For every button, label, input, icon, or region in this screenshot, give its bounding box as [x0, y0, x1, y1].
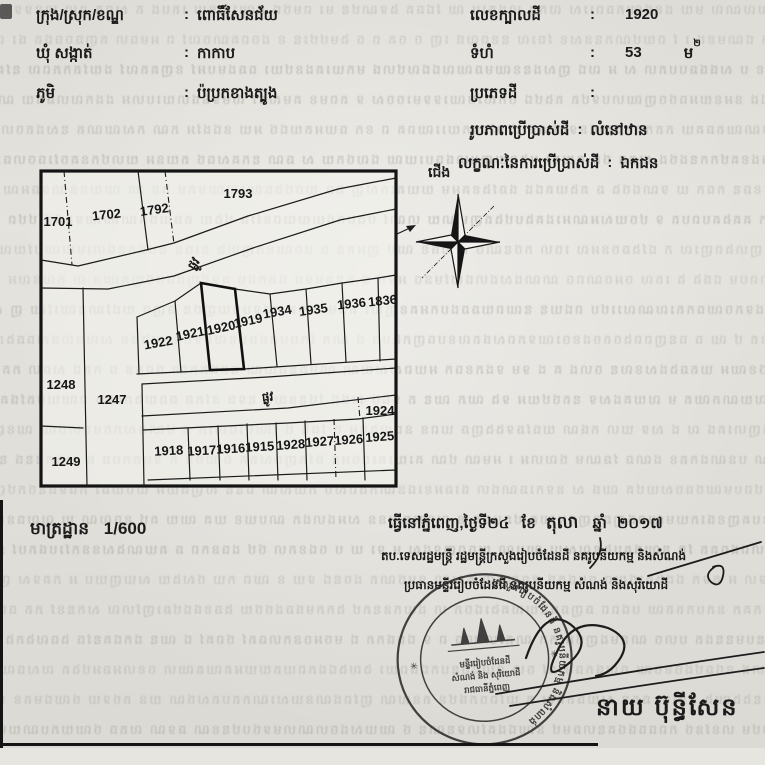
compass-north-white: [458, 194, 465, 242]
parcel-label: 1927: [305, 433, 335, 450]
field-land-type: ប្រភេទដី :: [470, 84, 603, 106]
field-value: 53: [603, 44, 642, 61]
compass-east-white: [458, 242, 500, 249]
parcel-label: 1702: [91, 206, 121, 224]
field-label: ឃុំ សង្កាត់: [36, 44, 176, 66]
scan-edge-line-left: [0, 500, 3, 748]
compass-south-white: [451, 242, 458, 288]
parcel-label: 1701: [44, 214, 73, 229]
field-land-use-form: រូបភាពប្រើប្រាស់ដី : លំនៅឋាន: [470, 121, 648, 143]
field-separator: :: [176, 44, 197, 61]
parcel-label: 1926: [334, 431, 364, 448]
field-area: ទំហំ : 53 ម ២: [470, 44, 701, 66]
field-value: ឯកជន: [620, 154, 658, 176]
cadastral-map: ផ្លូវ ផ្លូវ 1701 1702 1792 1793 1922 192…: [38, 168, 420, 503]
compass-rose-icon: [408, 180, 508, 297]
field-label: ក្រុង/ស្រុក/ខណ្ឌ: [36, 6, 176, 28]
field-separator: :: [582, 84, 603, 101]
cadastral-map-svg: ផ្លូវ ផ្លូវ 1701 1702 1792 1793 1922 192…: [38, 168, 420, 498]
compass-east-black: [458, 235, 500, 242]
field-separator: :: [599, 154, 620, 171]
field-label: ប្រភេទដី: [470, 84, 582, 106]
compass-south-black: [458, 242, 465, 288]
field-label: រូបភាពប្រើប្រាស់ដី: [470, 121, 569, 143]
parcel-label: 1836: [367, 292, 397, 310]
handwritten-stroke: [590, 538, 601, 568]
field-label: លេខក្បាលដី: [470, 6, 582, 28]
field-separator: :: [569, 121, 590, 138]
field-value: លំនៅឋាន: [590, 121, 647, 143]
handwritten-flourish: [708, 566, 724, 585]
field-parcel-number: លេខក្បាលដី : 1920: [470, 6, 658, 28]
compass-north-label: ជើង: [428, 163, 450, 184]
parcel-label: 1936: [336, 295, 366, 313]
parcel-label: 1917: [187, 442, 217, 458]
scan-corner-mark: [0, 4, 12, 19]
compass-svg: [408, 180, 508, 292]
field-label: ភូមិ: [36, 84, 176, 106]
parcel-label: 1925: [365, 428, 395, 445]
scale-value: 1/600: [94, 519, 147, 538]
parcel-label: 1916: [216, 440, 246, 456]
parcel-label: 1247: [98, 392, 127, 407]
field-separator: :: [582, 44, 603, 61]
parcel-label: 1924: [366, 403, 396, 418]
field-land-use-nature: លក្ខណៈនៃការប្រើប្រាស់ដី : ឯកជន: [458, 154, 658, 176]
parcel-label: 1249: [52, 454, 81, 469]
scale-label: មាត្រដ្ឋាន: [30, 519, 89, 538]
field-separator: :: [176, 6, 197, 23]
signature-loops: [526, 619, 624, 676]
compass-west-black: [416, 242, 458, 249]
field-village: ភូមិ : ប៉ប្រកខាងត្បូង: [36, 84, 277, 106]
field-value: កាកាប: [197, 44, 235, 66]
parcel-label: 1928: [276, 436, 306, 453]
signer-name: នាយ ប៊ុន្ធីសែន: [596, 692, 739, 727]
field-value: 1920: [603, 6, 658, 23]
field-label: លក្ខណៈនៃការប្រើប្រាស់ដី: [458, 154, 599, 176]
field-district: ក្រុង/ស្រុក/ខណ្ឌ : ពោធិ៍សែនជ័យ: [36, 6, 278, 28]
field-label: ទំហំ: [470, 44, 582, 66]
parcel-label: 1793: [224, 186, 253, 201]
field-separator: :: [582, 6, 603, 23]
compass-west-white: [416, 235, 458, 242]
field-commune: ឃុំ សង្កាត់ : កាកាប: [36, 44, 235, 66]
compass-north-black: [451, 194, 458, 242]
parcel-label: 1248: [47, 377, 76, 392]
handwritten-stroke: [648, 542, 761, 576]
field-value: ប៉ប្រកខាងត្បូង: [197, 84, 277, 106]
area-unit: ម: [642, 44, 694, 66]
field-separator: :: [176, 84, 197, 101]
scan-edge-line-bottom: [0, 743, 598, 746]
parcel-label: 1915: [245, 438, 275, 454]
parcel-label: 1918: [154, 442, 184, 458]
map-scale: មាត្រដ្ឋាន 1/600: [30, 518, 146, 543]
field-value: ពោធិ៍សែនជ័យ: [197, 6, 278, 28]
